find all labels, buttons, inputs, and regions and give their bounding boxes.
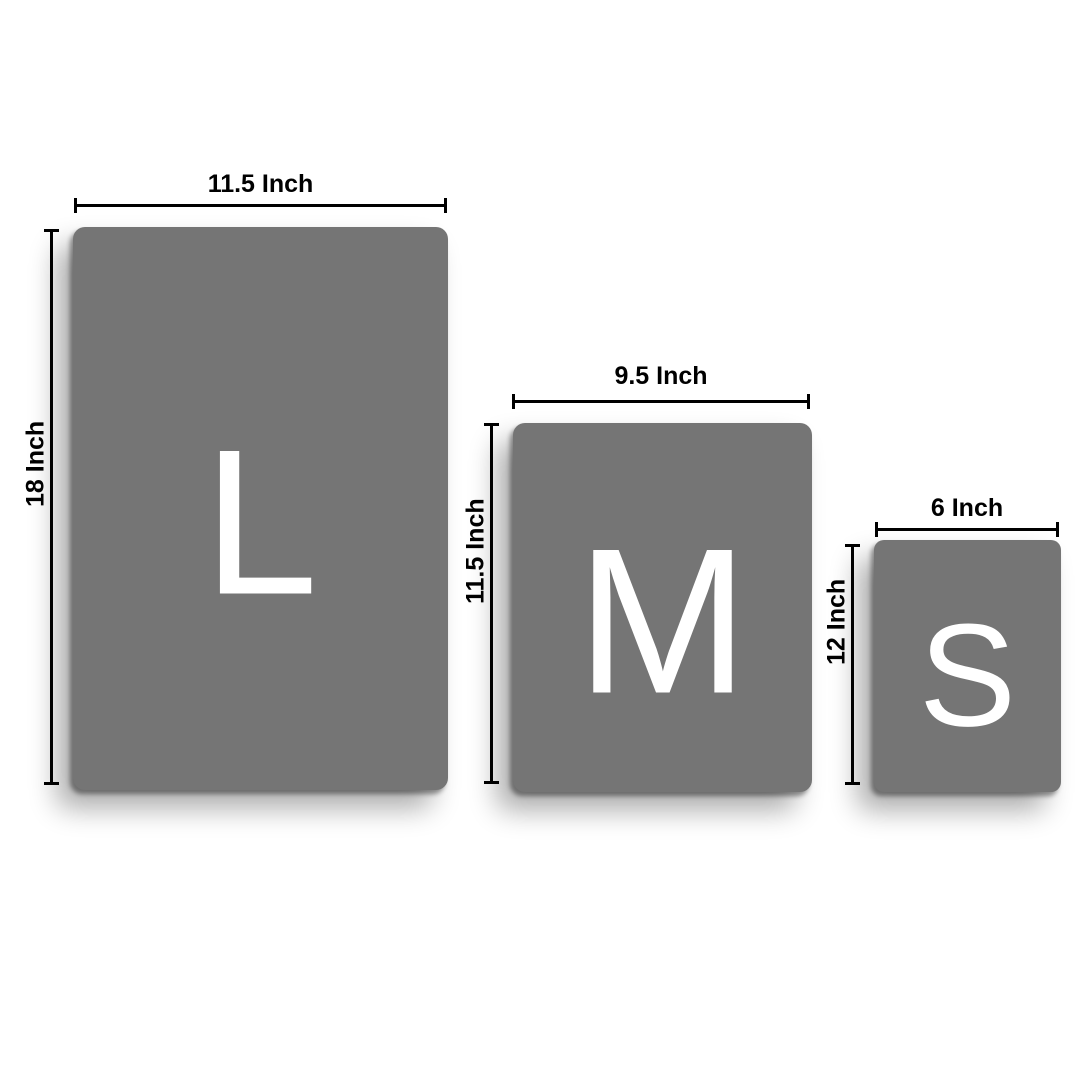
small-width-dimension-line (875, 528, 1059, 531)
size-panel-small: S (874, 540, 1061, 792)
medium-size-letter: M (576, 517, 748, 724)
size-panel-medium: M (513, 423, 812, 792)
large-height-dimension-line (50, 229, 53, 785)
size-panel-large: L (73, 227, 448, 790)
large-width-dimension-label: 11.5 Inch (74, 170, 447, 198)
size-comparison-diagram: 11.5 Inch 18 Inch L 9.5 Inch 11.5 Inch M… (0, 0, 1080, 1080)
medium-width-dimension-label: 9.5 Inch (512, 362, 810, 390)
small-size-letter: S (919, 602, 1016, 748)
large-width-dimension-line (74, 204, 447, 207)
large-size-letter: L (203, 418, 318, 625)
small-width-dimension-label: 6 Inch (875, 494, 1059, 522)
medium-width-dimension-line (512, 400, 810, 403)
